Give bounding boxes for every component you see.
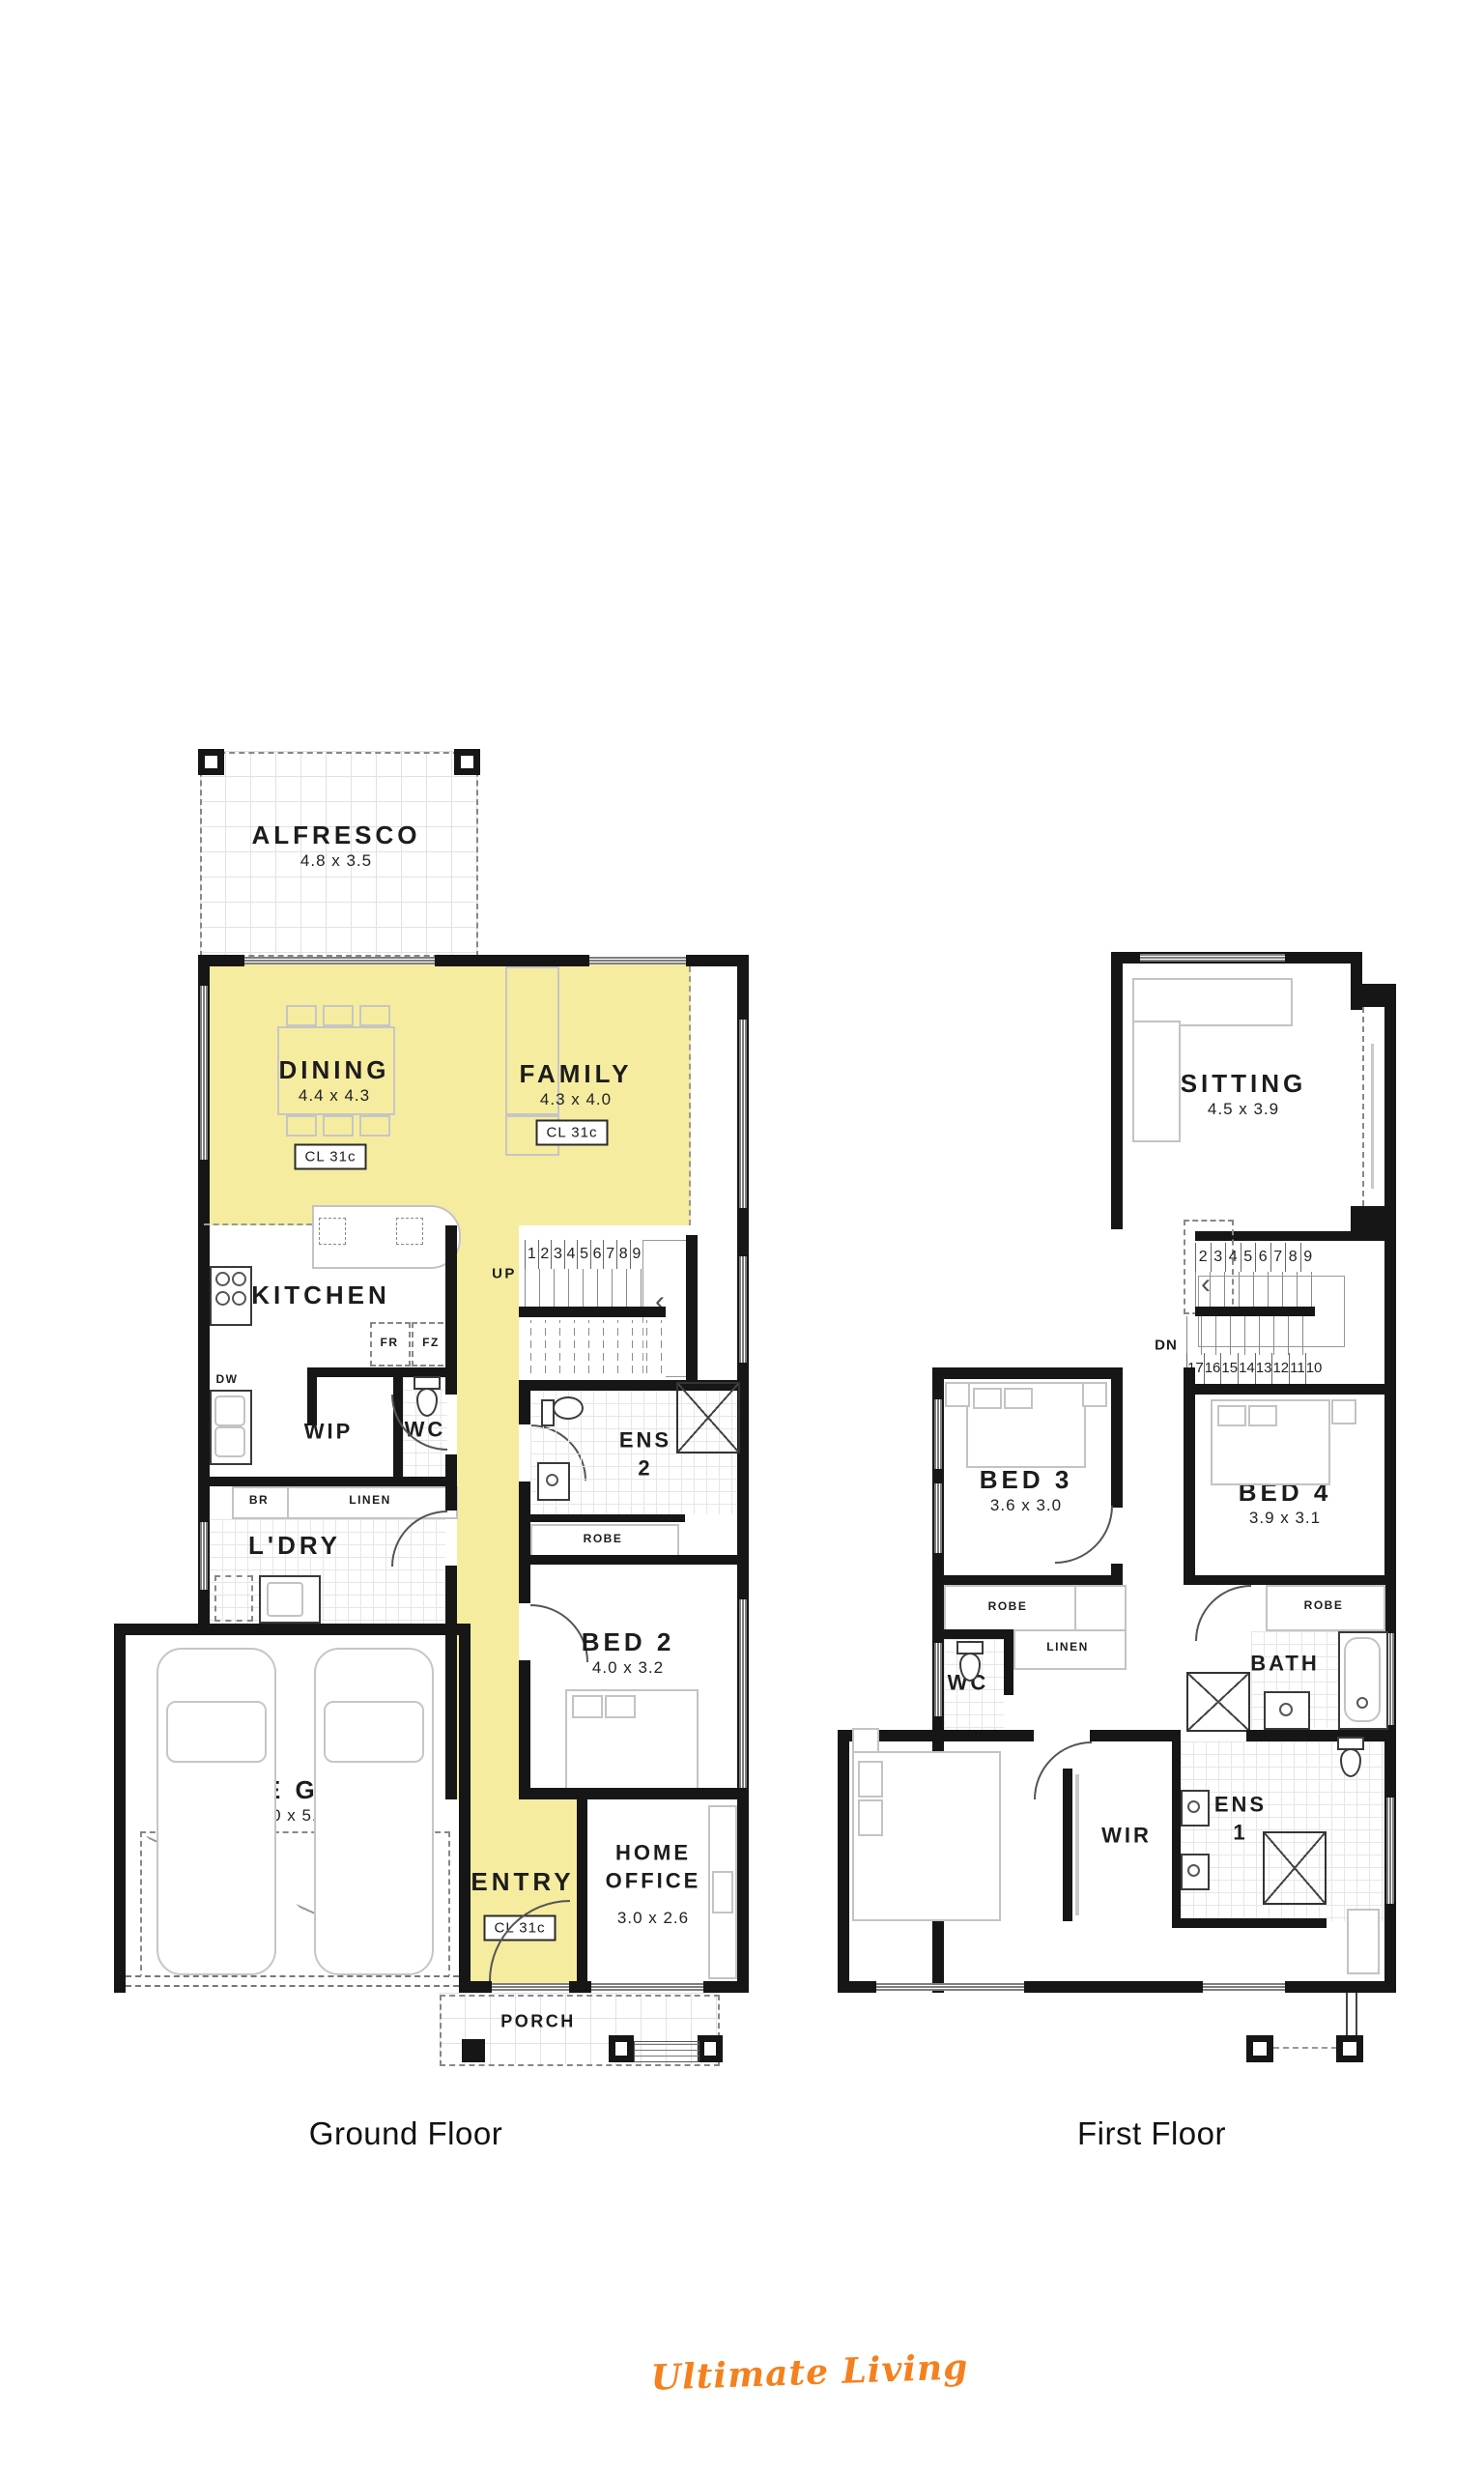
vanity-basin: [1279, 1703, 1293, 1716]
island-sink: [319, 1218, 346, 1245]
window: [589, 957, 686, 964]
sitting-label: SITTING: [1181, 1068, 1307, 1101]
stair-number: 5: [1241, 1243, 1256, 1272]
window: [200, 986, 208, 1160]
wall: [445, 1454, 457, 1510]
wall: [114, 1624, 471, 1635]
car: [314, 1648, 434, 1975]
bathtub-drain: [1356, 1697, 1368, 1709]
garage-door: [126, 1975, 459, 1987]
sliding-door-window: [244, 957, 435, 964]
kitchen-label: KITCHEN: [251, 1280, 390, 1312]
wall: [114, 1624, 126, 1993]
porch-post: [609, 2035, 634, 2062]
bedside-table: [1331, 1399, 1356, 1424]
door-arc: [530, 1604, 588, 1662]
wall: [445, 1225, 457, 1395]
family-ceiling-tag: CL 31c: [536, 1120, 609, 1146]
stair-treads: [525, 1269, 642, 1308]
stair-numbers-lower: 1716151413121110: [1186, 1353, 1306, 1384]
floor-plan-page: ALFRESCO 4.8 x 3.5 DINING 4.4 x 4.3 CL 3…: [0, 0, 1484, 2474]
wall: [1111, 952, 1123, 1229]
wall: [519, 1482, 530, 1603]
pillow: [973, 1388, 1002, 1409]
wip-label: WIP: [304, 1419, 354, 1447]
trough-bowl: [267, 1582, 303, 1617]
office-dim: 3.0 x 2.6: [617, 1909, 689, 1928]
fridge-label: FR: [381, 1336, 399, 1351]
wall: [519, 1390, 530, 1424]
first-floor-caption: First Floor: [1077, 2115, 1226, 2152]
shower-icon: [676, 1382, 740, 1453]
entry-label: ENTRY: [471, 1866, 574, 1899]
vanity-basin: [1187, 1864, 1200, 1877]
broom-label: BR: [249, 1493, 269, 1509]
dining-chair: [359, 1005, 390, 1026]
bed3-dim: 3.6 x 3.0: [990, 1496, 1062, 1515]
dining-chair: [323, 1005, 354, 1026]
bed4-dim: 3.9 x 3.1: [1249, 1509, 1321, 1528]
stair-number: 11: [1289, 1353, 1305, 1384]
laundry-label: L'DRY: [248, 1530, 341, 1563]
door-arc: [1195, 1585, 1251, 1641]
alfresco-dim: 4.8 x 3.5: [300, 851, 372, 871]
wir-label: WIR: [1101, 1823, 1152, 1851]
door-arc: [1055, 1506, 1113, 1564]
bed4-robe-label: ROBE: [1304, 1598, 1344, 1614]
stair-number: 6: [590, 1240, 604, 1269]
washer-space: [214, 1575, 253, 1622]
porch-roof-dash: [1273, 2047, 1337, 2049]
window: [1203, 1983, 1285, 1991]
bedside-table: [852, 1728, 879, 1753]
stair-number: 15: [1220, 1353, 1238, 1384]
dining-chair: [286, 1115, 317, 1136]
porch-column-line: [1346, 1993, 1357, 2035]
stair-landing-edge: [1195, 1307, 1315, 1316]
bed3-robe-label: ROBE: [988, 1599, 1028, 1615]
bath-label: BATH: [1250, 1651, 1319, 1679]
ens2-label: ENS 2: [619, 1426, 671, 1482]
stair-number: 13: [1255, 1353, 1272, 1384]
bedside-table: [1082, 1382, 1107, 1407]
stair-number: 16: [1204, 1353, 1221, 1384]
window: [591, 1983, 703, 1991]
dn-label: DN: [1155, 1336, 1178, 1355]
entry-door-sill: [492, 1983, 569, 1991]
burner: [215, 1291, 230, 1306]
sink-bowl: [214, 1395, 245, 1426]
stair-number: 7: [603, 1240, 616, 1269]
bed2-dim: 4.0 x 3.2: [592, 1658, 664, 1678]
stair-treads: [1186, 1316, 1306, 1355]
pillow: [1248, 1405, 1277, 1426]
vanity-basin: [546, 1474, 558, 1486]
porch-post: [698, 2035, 723, 2062]
window: [876, 1983, 1024, 1991]
porch-steps: [634, 2041, 699, 2062]
family-open-edge: [689, 966, 691, 1225]
window-seat: [1347, 1909, 1380, 1974]
wall: [1090, 1730, 1172, 1741]
ff-linen-label: LINEN: [1046, 1640, 1089, 1655]
office-computer: [712, 1871, 733, 1913]
wall: [530, 1788, 749, 1799]
stair-number: 4: [564, 1240, 578, 1269]
dining-chair: [359, 1115, 390, 1136]
brand-logo: Ultimate Living: [650, 2346, 969, 2398]
dining-ceiling-tag: CL 31c: [295, 1144, 367, 1170]
stair-numbers-upper: 23456789: [1195, 1243, 1315, 1272]
wall: [1186, 1384, 1396, 1395]
pillow: [605, 1695, 636, 1718]
dining-dim: 4.4 x 4.3: [299, 1086, 370, 1106]
car-windshield: [324, 1701, 424, 1763]
pillow: [1217, 1405, 1246, 1426]
window: [1140, 954, 1285, 962]
sitting-sofa: [1132, 978, 1293, 1026]
wall: [519, 1555, 749, 1565]
window: [739, 1020, 747, 1208]
stair-number: 3: [551, 1240, 564, 1269]
wall: [1184, 1367, 1195, 1585]
wall: [838, 1981, 876, 1993]
alfresco-post: [198, 749, 224, 775]
stair-number: 7: [1270, 1243, 1286, 1272]
bed2-robe-label: ROBE: [584, 1532, 623, 1547]
bathtub-inner: [1344, 1637, 1381, 1722]
stair-number: 6: [1255, 1243, 1270, 1272]
wall: [838, 1730, 849, 1993]
dining-label: DINING: [279, 1054, 390, 1087]
shower-icon: [1263, 1831, 1327, 1905]
pillow: [1004, 1388, 1033, 1409]
stair-landing-edge: [519, 1307, 666, 1317]
wir-shelf: [1075, 1774, 1079, 1915]
wall: [1111, 1367, 1123, 1508]
wall: [1063, 1769, 1072, 1921]
wall: [445, 1566, 457, 1799]
freezer-label: FZ: [422, 1336, 440, 1351]
window: [200, 1522, 208, 1590]
stair-number: 5: [577, 1240, 590, 1269]
car: [157, 1648, 276, 1975]
sitting-dim: 4.5 x 3.9: [1208, 1100, 1279, 1119]
ens1-label: ENS 1: [1214, 1791, 1267, 1846]
slider-panel: [1371, 1044, 1374, 1189]
linen-label: LINEN: [349, 1493, 391, 1509]
stair-number: 9: [630, 1240, 643, 1269]
pillow: [858, 1761, 883, 1798]
wall: [569, 1981, 591, 1993]
stair-number: 12: [1271, 1353, 1289, 1384]
pillow: [572, 1695, 603, 1718]
dining-chair: [323, 1115, 354, 1136]
wall: [1184, 1575, 1396, 1585]
dining-chair: [286, 1005, 317, 1026]
sink-bowl: [214, 1426, 245, 1457]
wall: [519, 1660, 530, 1799]
wall: [1172, 1730, 1181, 1921]
pillow: [858, 1799, 883, 1836]
stair-number: 4: [1225, 1243, 1241, 1272]
wall: [1246, 1730, 1396, 1741]
window: [739, 1256, 747, 1363]
stair-number: 8: [616, 1240, 630, 1269]
stair-number: 9: [1300, 1243, 1316, 1272]
dishwasher-label: DW: [216, 1372, 239, 1388]
stair-number: 14: [1238, 1353, 1255, 1384]
car-windshield: [166, 1701, 267, 1763]
bed3-label: BED 3: [980, 1464, 1073, 1497]
stair-treads-dashed: [530, 1320, 666, 1378]
vanity-basin: [1187, 1800, 1200, 1813]
alfresco-label: ALFRESCO: [252, 820, 421, 852]
window: [934, 1483, 942, 1553]
ground-floor-caption: Ground Floor: [309, 2115, 502, 2152]
stair-number: 1: [525, 1240, 538, 1269]
porch-label: PORCH: [500, 2010, 576, 2032]
porch-post: [1336, 2035, 1363, 2062]
porch-post: [1246, 2035, 1273, 2062]
stair-number: 3: [1211, 1243, 1226, 1272]
store-nook: [1362, 1007, 1386, 1206]
wall: [577, 1799, 587, 1983]
wall: [1351, 1206, 1396, 1231]
family-dim: 4.3 x 4.0: [540, 1090, 612, 1109]
wall: [932, 1367, 1123, 1379]
up-label: UP: [492, 1264, 517, 1283]
alfresco-post: [454, 749, 480, 775]
burner: [232, 1291, 246, 1306]
wall: [307, 1367, 317, 1425]
wall: [459, 1624, 471, 1993]
bed2-label: BED 2: [582, 1626, 675, 1659]
toilet-icon: [553, 1396, 584, 1420]
family-label: FAMILY: [520, 1058, 633, 1091]
wall: [1172, 1918, 1327, 1928]
stair-numbers-up: 123456789: [525, 1240, 642, 1269]
bedside-table: [945, 1382, 970, 1407]
kitchen-open-edge: [204, 1223, 312, 1225]
wall: [471, 1981, 492, 1993]
wall: [435, 955, 589, 966]
wall: [1024, 1981, 1203, 1993]
wall: [530, 1514, 685, 1522]
wall: [1004, 1639, 1013, 1695]
office-label: HOME OFFICE: [606, 1839, 701, 1894]
burner: [232, 1272, 246, 1286]
wall: [932, 1575, 1123, 1585]
shower-icon: [1186, 1672, 1250, 1732]
window: [739, 1599, 747, 1788]
stair-number: 8: [1285, 1243, 1300, 1272]
stair-arrow: ‹: [1201, 1268, 1211, 1301]
wall: [1285, 1981, 1396, 1993]
stair-number: 10: [1305, 1353, 1323, 1384]
island-sink: [396, 1218, 423, 1245]
porch-post: [462, 2039, 485, 2062]
wall: [686, 1235, 698, 1390]
sitting-sofa-return: [1132, 1021, 1181, 1142]
cupboard: [1074, 1585, 1127, 1631]
wall: [703, 1981, 749, 1993]
window: [934, 1399, 942, 1469]
wall: [204, 1477, 457, 1486]
burner: [215, 1272, 230, 1286]
window: [1386, 1798, 1394, 1904]
window: [934, 1643, 942, 1716]
stair-number: 2: [538, 1240, 552, 1269]
